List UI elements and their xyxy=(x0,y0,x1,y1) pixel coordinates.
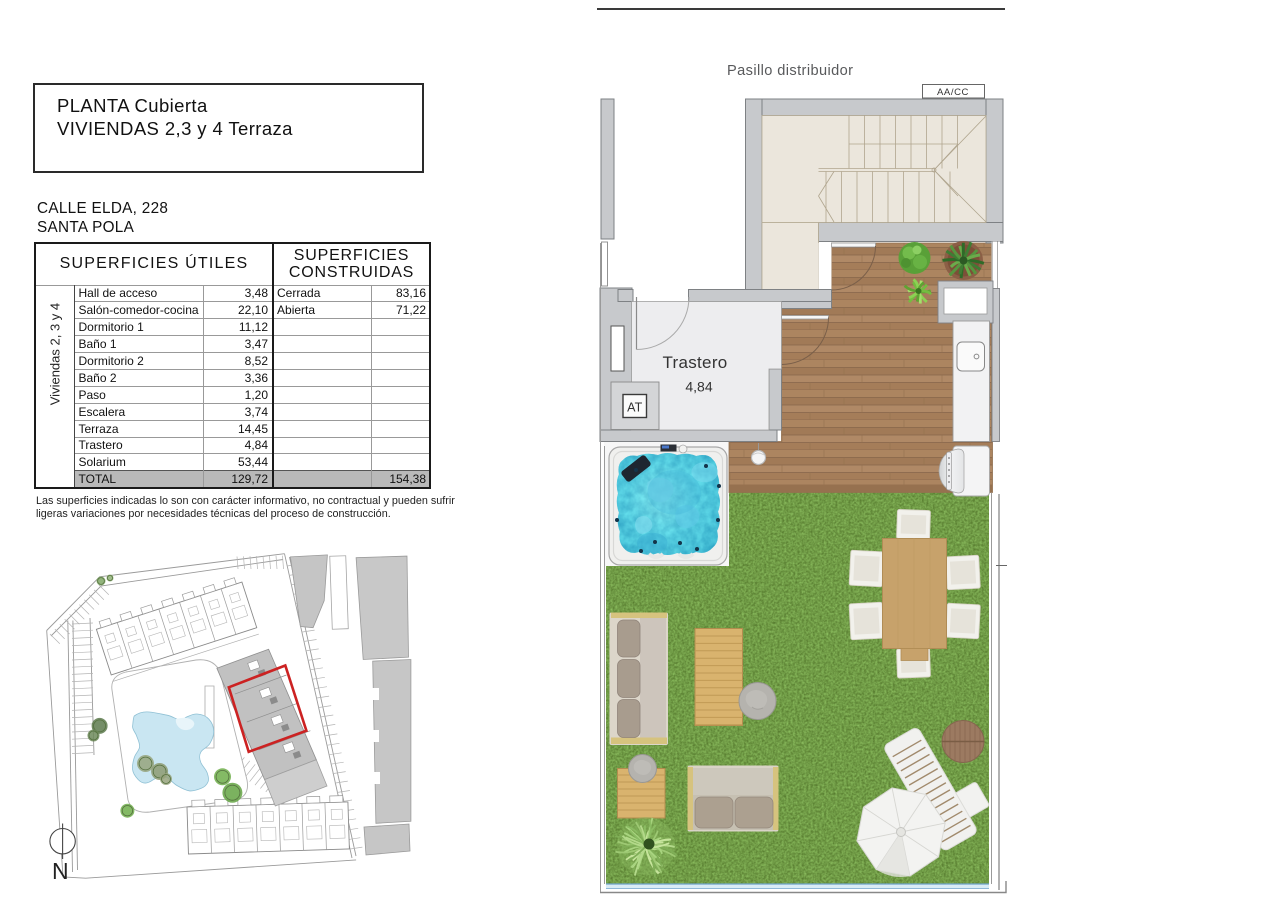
svg-text:Pasillo distribuidor: Pasillo distribuidor xyxy=(727,63,853,79)
svg-text:4,84: 4,84 xyxy=(685,379,712,395)
svg-text:Trastero: Trastero xyxy=(662,353,727,372)
svg-text:N: N xyxy=(52,858,69,884)
svg-text:AA/CC: AA/CC xyxy=(937,87,969,98)
svg-text:AT: AT xyxy=(627,401,642,415)
